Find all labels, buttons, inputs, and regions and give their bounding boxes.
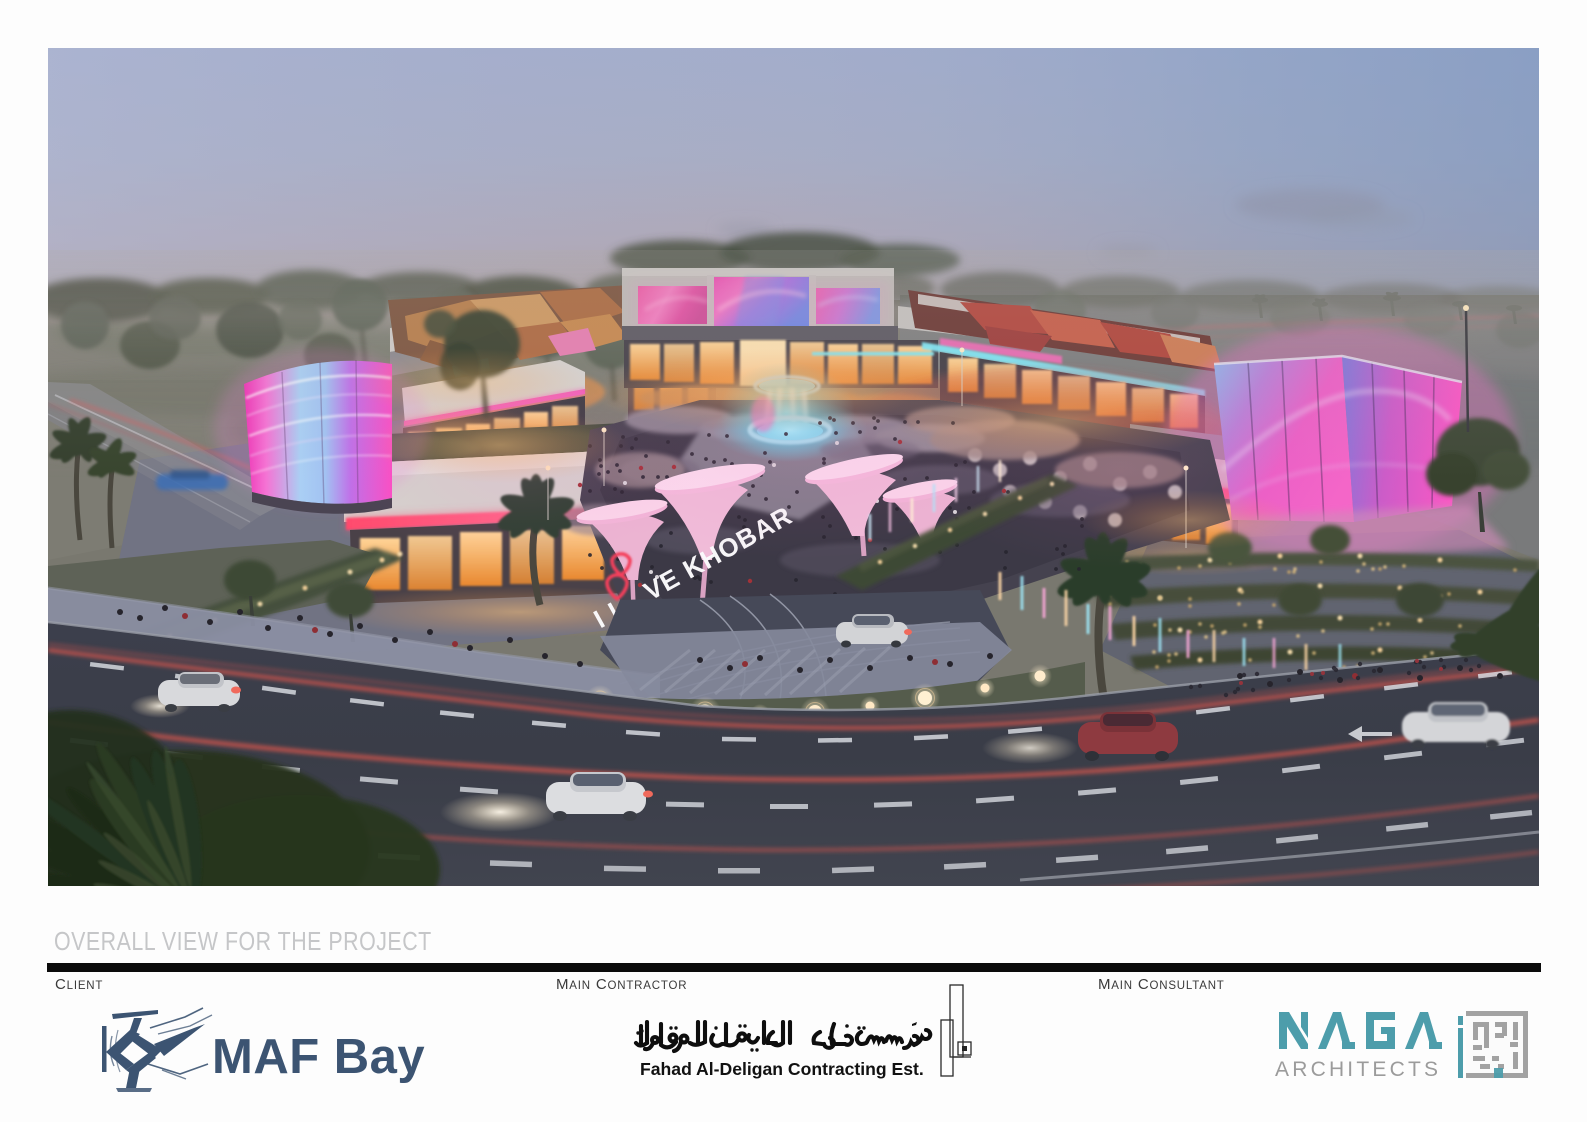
svg-text:ARCHITECTS: ARCHITECTS xyxy=(1275,1058,1441,1081)
svg-text:Fahad Al-Deligan Contracting E: Fahad Al-Deligan Contracting Est. xyxy=(640,1059,924,1079)
svg-text:MAF Bay: MAF Bay xyxy=(212,1030,425,1084)
